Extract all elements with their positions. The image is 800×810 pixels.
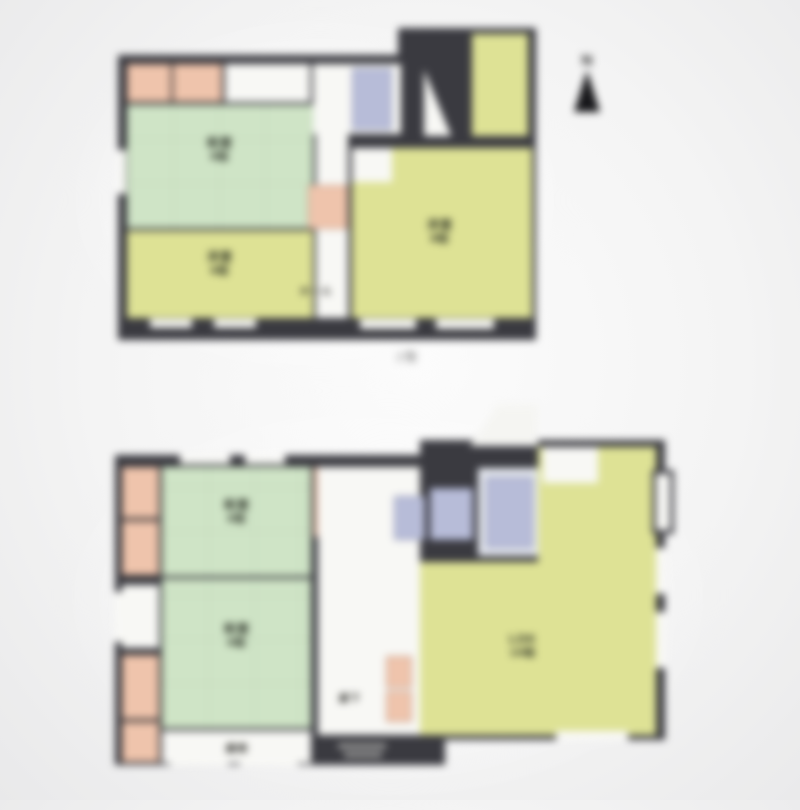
- room-label-western-large-2f: 洋室 8帖: [390, 218, 490, 247]
- tatami-room-1f-b: [162, 579, 311, 728]
- window: [360, 319, 416, 329]
- entrance-step: [338, 744, 386, 748]
- bay-window-1f: [652, 470, 674, 534]
- room-label-western-small-2f: 洋室 6帖: [165, 250, 275, 279]
- closet-1f: [122, 467, 159, 518]
- kitchen-counter-1f: [386, 656, 412, 688]
- window: [245, 455, 285, 464]
- compass-north-label: N: [568, 52, 606, 69]
- window: [170, 756, 228, 765]
- room-label-hallway-1f: 廊下: [328, 690, 372, 705]
- room-label-tatami-1f-a: 和室 6帖: [182, 498, 292, 527]
- closet-2f: [173, 64, 222, 102]
- closet-1f: [122, 655, 159, 719]
- window: [115, 592, 123, 642]
- blurred-floorplan-image: 和室 8帖 洋室 6帖 洋室 8帖 ホール 2階 N: [0, 0, 800, 800]
- toilet-2f: [352, 68, 392, 130]
- room-label-hall-2f: ホール: [294, 283, 338, 298]
- hall-notch-2f: [352, 148, 392, 182]
- window: [150, 319, 192, 328]
- tatami-room-2f: [127, 105, 313, 228]
- staircase-2f: [424, 34, 466, 136]
- room-label-tatami-2f: 和室 8帖: [165, 136, 275, 165]
- western-room-2f-topright: [472, 34, 528, 136]
- window: [118, 150, 126, 194]
- kitchen-counter-1f: [386, 691, 412, 722]
- washroom-1f: [430, 488, 473, 540]
- floor-caption-2f: 2階: [396, 348, 419, 365]
- window: [656, 548, 665, 594]
- storage-1f: [122, 585, 159, 648]
- window: [214, 319, 256, 328]
- closet-1f: [122, 722, 159, 762]
- ldk-1f: [538, 447, 656, 735]
- toilet-1f: [394, 496, 425, 540]
- genkan-1f: [543, 447, 598, 483]
- window: [436, 319, 494, 329]
- bathtub-1f: [486, 477, 533, 548]
- window: [656, 612, 665, 668]
- window: [180, 455, 230, 464]
- closet-1f: [122, 521, 159, 575]
- north-arrow-icon: [574, 70, 600, 112]
- room-label-veranda-1f: 縁側: [212, 740, 262, 755]
- closet-2f-mid: [308, 185, 348, 229]
- room-label-ldk-1f: LDK 16帖: [468, 632, 578, 661]
- closet-2f: [127, 64, 171, 102]
- alcove-2f: [225, 64, 310, 102]
- north-compass-icon: N: [568, 52, 606, 112]
- room-label-tatami-1f-b: 和室 6帖: [182, 622, 292, 651]
- entrance-step: [344, 753, 382, 757]
- window: [240, 756, 298, 765]
- window: [556, 731, 628, 740]
